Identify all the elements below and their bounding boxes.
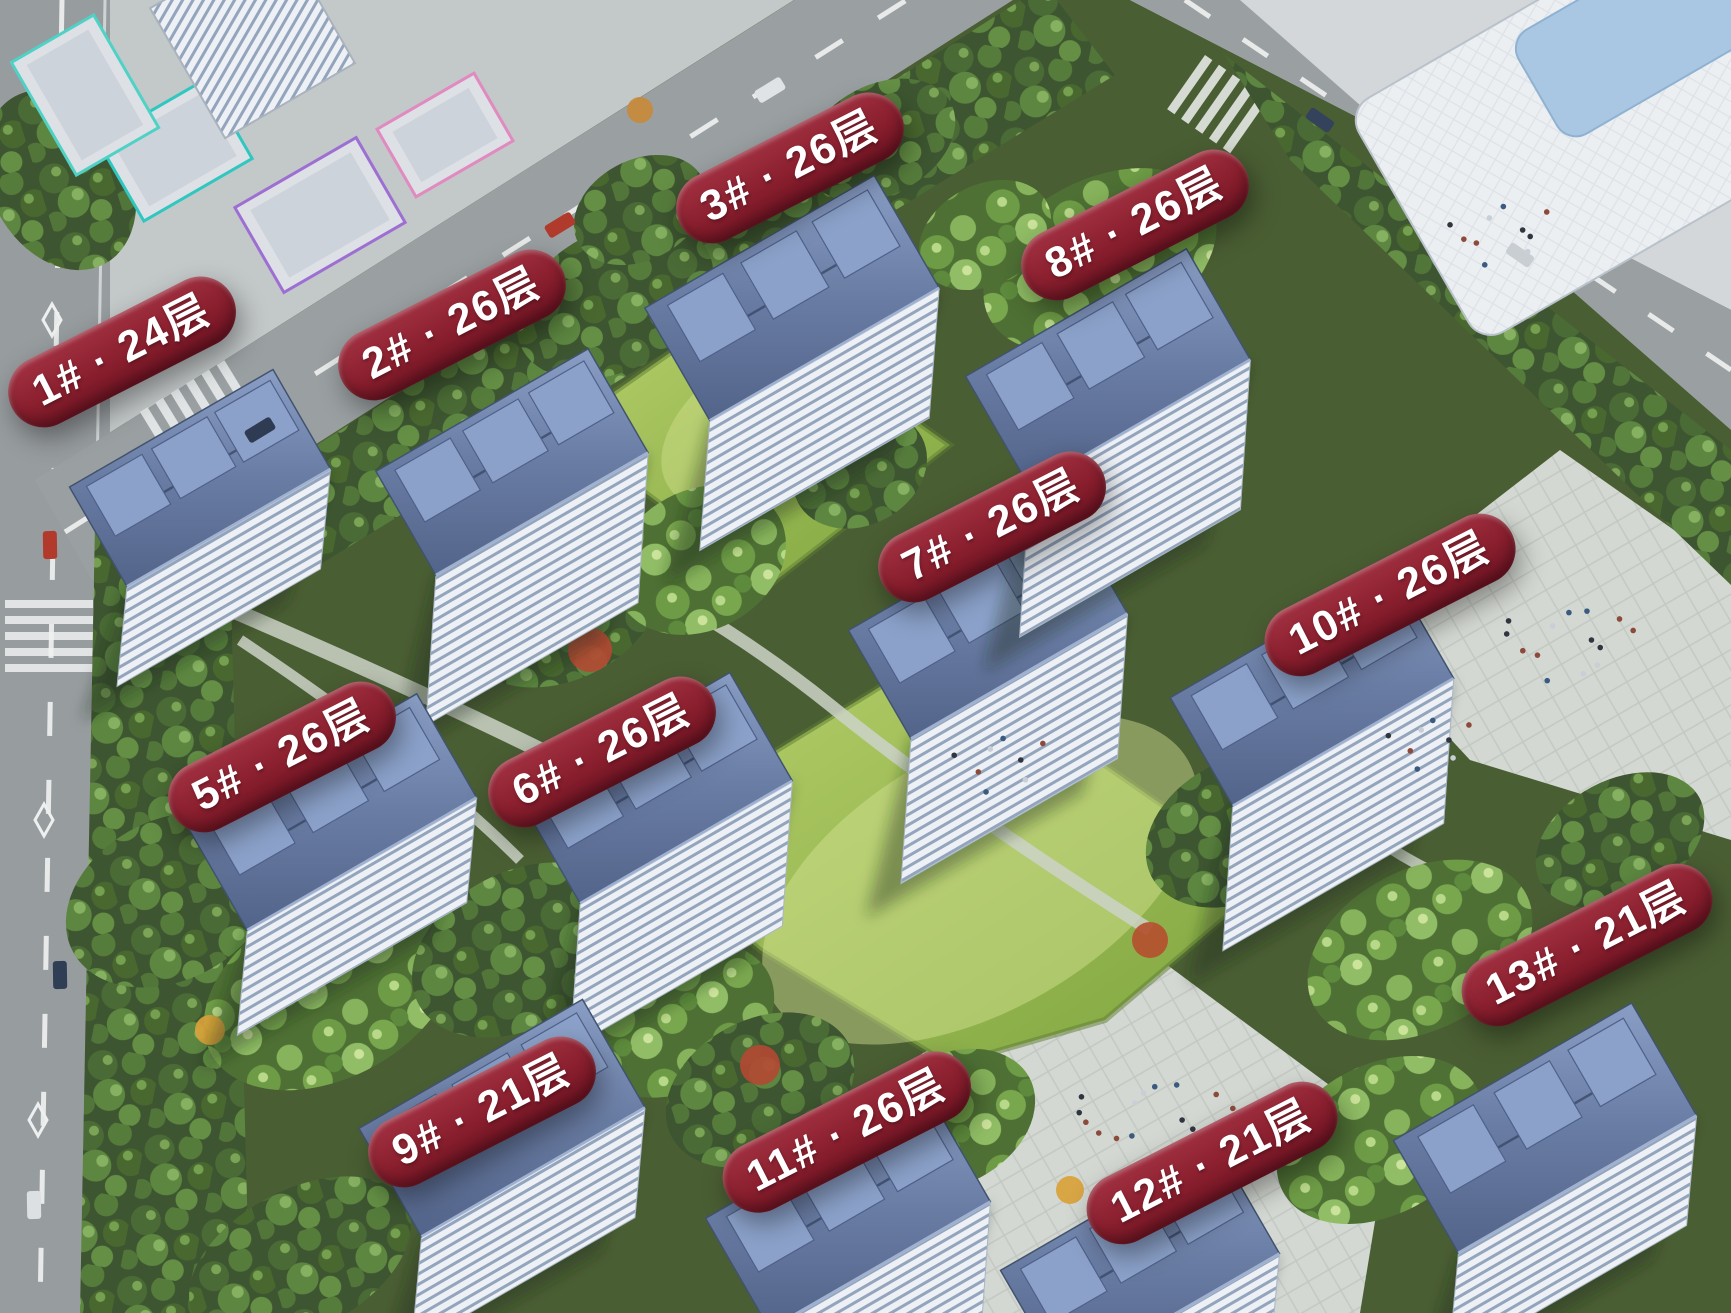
residential-masterplan-aerial: 1# · 24层 2# · 26层 3# · 26层 5# · 26层 6# ·… — [0, 0, 1731, 1313]
